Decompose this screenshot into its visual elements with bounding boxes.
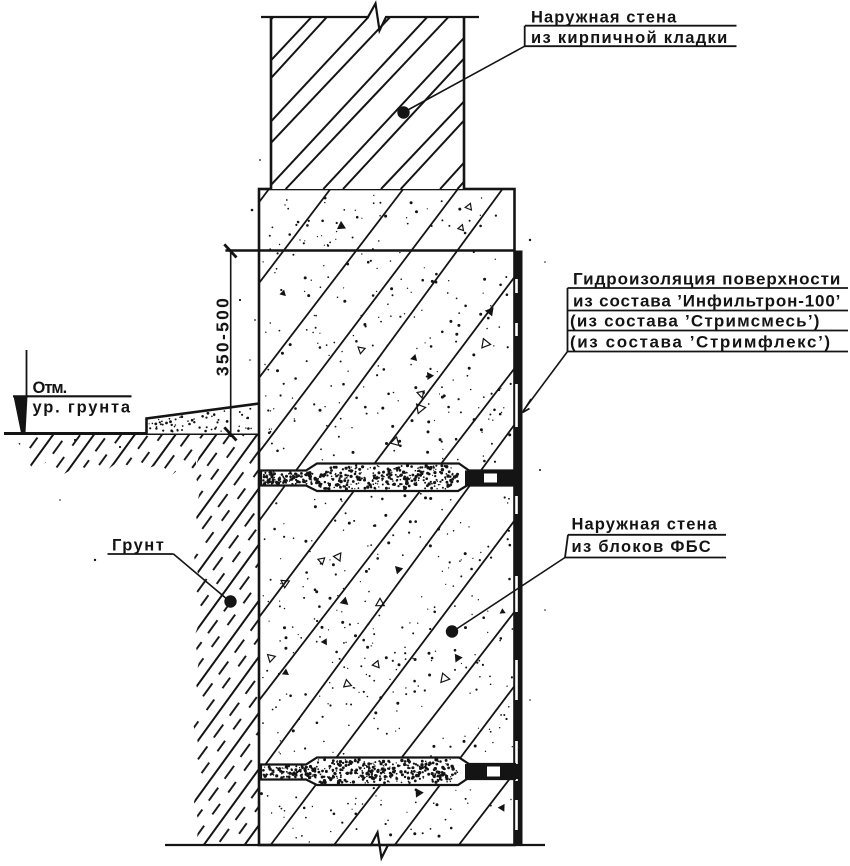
svg-text:(из состава ’Стримсмесь’): (из состава ’Стримсмесь’) (570, 312, 821, 331)
svg-text:Наружная стена: Наружная стена (531, 9, 677, 27)
svg-text:из состава ’Инфильтрон-100’: из состава ’Инфильтрон-100’ (573, 292, 841, 311)
svg-text:из блоков ФБС: из блоков ФБС (572, 538, 712, 556)
svg-text:(из состава ’Стримфлекс’): (из состава ’Стримфлекс’) (570, 333, 832, 352)
svg-text:Грунт: Грунт (112, 537, 165, 555)
svg-text:Наружная стена: Наружная стена (572, 516, 718, 534)
svg-text:Гидроизоляция поверхности: Гидроизоляция поверхности (573, 270, 841, 289)
svg-text:350-500: 350-500 (213, 296, 233, 376)
svg-text:ур. грунта: ур. грунта (33, 399, 132, 417)
svg-text:Отм.: Отм. (33, 379, 67, 397)
svg-text:из кирпичной кладки: из кирпичной кладки (531, 29, 729, 47)
